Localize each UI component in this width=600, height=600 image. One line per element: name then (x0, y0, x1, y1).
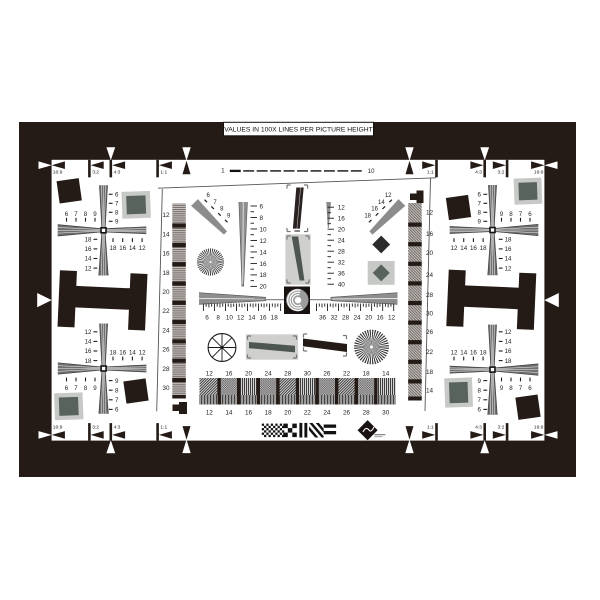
svg-text:10: 10 (260, 226, 268, 233)
svg-text:22: 22 (304, 409, 312, 416)
svg-text:6: 6 (115, 192, 119, 199)
svg-text:4:3: 4:3 (475, 169, 482, 175)
svg-text:30: 30 (304, 370, 312, 377)
svg-text:36: 36 (319, 315, 327, 322)
svg-text:14: 14 (460, 245, 467, 252)
svg-text:28: 28 (284, 370, 292, 377)
svg-text:16: 16 (119, 349, 126, 356)
svg-text:18: 18 (110, 245, 117, 252)
svg-text:20: 20 (245, 370, 253, 377)
svg-text:16: 16 (505, 246, 512, 253)
svg-text:12: 12 (139, 245, 146, 252)
svg-text:8: 8 (216, 315, 220, 322)
svg-text:12: 12 (139, 349, 146, 356)
svg-text:6: 6 (65, 385, 69, 392)
svg-text:18: 18 (110, 349, 117, 356)
svg-text:26: 26 (323, 370, 331, 377)
svg-text:7: 7 (478, 397, 482, 404)
svg-text:16: 16 (376, 315, 384, 322)
svg-text:18: 18 (480, 245, 487, 252)
svg-text:6: 6 (478, 407, 482, 414)
svg-text:22: 22 (426, 349, 434, 356)
svg-text:12: 12 (388, 315, 396, 322)
svg-text:18: 18 (85, 237, 92, 244)
svg-text:3:2: 3:2 (497, 169, 504, 175)
svg-text:18: 18 (364, 213, 371, 219)
svg-text:9: 9 (115, 219, 119, 226)
svg-text:16:9: 16:9 (534, 425, 544, 431)
svg-text:7: 7 (115, 397, 119, 404)
svg-text:6: 6 (478, 192, 482, 199)
svg-text:4:3: 4:3 (114, 169, 121, 175)
svg-text:12: 12 (85, 265, 92, 272)
svg-text:4:3: 4:3 (475, 425, 482, 431)
svg-text:14: 14 (85, 339, 92, 346)
svg-text:16: 16 (505, 348, 512, 355)
svg-text:14: 14 (260, 249, 268, 256)
svg-text:18: 18 (505, 358, 512, 365)
svg-text:20: 20 (426, 250, 434, 257)
svg-text:20: 20 (338, 227, 346, 234)
svg-text:16: 16 (260, 261, 268, 268)
svg-text:12: 12 (426, 210, 434, 217)
svg-text:16: 16 (119, 245, 126, 252)
svg-text:26: 26 (162, 347, 170, 354)
svg-text:1:1: 1:1 (427, 425, 434, 431)
svg-text:24: 24 (323, 409, 331, 416)
svg-text:6: 6 (528, 385, 532, 392)
svg-text:9: 9 (93, 211, 97, 218)
svg-text:18: 18 (271, 315, 279, 322)
svg-text:28: 28 (338, 249, 346, 256)
svg-text:12: 12 (206, 409, 214, 416)
svg-text:12: 12 (505, 329, 512, 336)
svg-text:6: 6 (65, 211, 69, 218)
svg-text:18: 18 (85, 358, 92, 365)
svg-text:16: 16 (225, 370, 233, 377)
svg-text:12: 12 (237, 315, 245, 322)
svg-text:8: 8 (115, 387, 119, 394)
svg-text:14: 14 (129, 245, 136, 252)
svg-text:6: 6 (115, 407, 119, 414)
svg-text:9: 9 (115, 378, 119, 385)
svg-text:16: 16 (85, 348, 92, 355)
svg-text:20: 20 (365, 315, 373, 322)
svg-text:8: 8 (509, 385, 513, 392)
svg-text:14: 14 (460, 349, 467, 356)
svg-text:12: 12 (505, 265, 512, 272)
svg-text:1:1: 1:1 (160, 169, 167, 175)
svg-text:24: 24 (162, 327, 170, 334)
svg-text:7: 7 (519, 211, 523, 218)
svg-text:9: 9 (478, 378, 482, 385)
svg-text:22: 22 (343, 370, 351, 377)
svg-text:30: 30 (382, 409, 390, 416)
svg-text:12: 12 (162, 212, 170, 219)
svg-text:14: 14 (85, 256, 92, 263)
svg-text:14: 14 (225, 409, 233, 416)
svg-text:14: 14 (162, 231, 170, 238)
svg-text:9: 9 (478, 219, 482, 226)
svg-text:20: 20 (162, 289, 170, 296)
svg-text:7: 7 (478, 201, 482, 208)
svg-text:30: 30 (162, 385, 170, 392)
svg-text:16: 16 (338, 216, 346, 223)
svg-text:6: 6 (205, 315, 209, 322)
svg-text:7: 7 (74, 211, 78, 218)
svg-text:28: 28 (363, 409, 371, 416)
svg-text:12: 12 (338, 205, 346, 212)
svg-text:1:1: 1:1 (160, 425, 167, 431)
svg-text:16: 16 (259, 315, 267, 322)
svg-text:10: 10 (226, 315, 234, 322)
svg-text:16: 16 (85, 246, 92, 253)
svg-text:14: 14 (505, 339, 512, 346)
svg-text:16: 16 (426, 231, 434, 238)
svg-text:3:2: 3:2 (92, 425, 99, 431)
svg-text:8: 8 (478, 210, 482, 217)
svg-text:7: 7 (519, 385, 523, 392)
svg-text:28: 28 (426, 292, 434, 299)
svg-text:24: 24 (353, 315, 361, 322)
svg-text:8: 8 (509, 211, 513, 218)
svg-text:22: 22 (162, 308, 170, 315)
svg-text:16: 16 (371, 207, 378, 213)
svg-text:18: 18 (505, 237, 512, 244)
svg-text:14: 14 (426, 387, 434, 394)
svg-text:8: 8 (478, 387, 482, 394)
svg-text:8: 8 (115, 210, 119, 217)
svg-text:28: 28 (162, 366, 170, 373)
svg-text:16: 16 (470, 245, 477, 252)
svg-text:8: 8 (84, 385, 88, 392)
svg-text:14: 14 (505, 256, 512, 263)
svg-text:16: 16 (162, 251, 170, 258)
svg-text:9: 9 (500, 385, 504, 392)
svg-text:12: 12 (451, 349, 458, 356)
svg-text:8: 8 (84, 211, 88, 218)
svg-text:7: 7 (115, 201, 119, 208)
svg-text:6: 6 (528, 211, 532, 218)
svg-text:10: 10 (368, 169, 375, 175)
svg-text:18: 18 (363, 370, 371, 377)
svg-text:3:2: 3:2 (497, 425, 504, 431)
svg-text:18: 18 (480, 349, 487, 356)
svg-text:18: 18 (260, 272, 268, 279)
svg-text:24: 24 (426, 272, 434, 279)
svg-text:36: 36 (338, 271, 346, 278)
svg-text:18: 18 (162, 270, 170, 277)
svg-text:9: 9 (500, 211, 504, 218)
svg-text:32: 32 (338, 260, 346, 267)
svg-text:4:3: 4:3 (114, 425, 121, 431)
svg-text:26: 26 (343, 409, 351, 416)
svg-text:24: 24 (265, 370, 273, 377)
svg-text:20: 20 (284, 409, 292, 416)
svg-text:16: 16 (470, 349, 477, 356)
svg-text:28: 28 (342, 315, 350, 322)
svg-text:14: 14 (248, 315, 256, 322)
svg-text:24: 24 (338, 238, 346, 245)
svg-text:14: 14 (129, 349, 136, 356)
svg-text:14: 14 (382, 370, 390, 377)
svg-text:12: 12 (206, 370, 214, 377)
svg-text:3:2: 3:2 (92, 169, 99, 175)
svg-text:12: 12 (451, 245, 458, 252)
svg-text:16:9: 16:9 (534, 169, 544, 175)
svg-text:12: 12 (85, 329, 92, 336)
svg-text:40: 40 (338, 282, 346, 289)
svg-text:16:9: 16:9 (53, 425, 63, 431)
svg-text:1:1: 1:1 (427, 169, 434, 175)
svg-text:7: 7 (74, 385, 78, 392)
svg-text:32: 32 (330, 315, 338, 322)
svg-text:20: 20 (260, 284, 268, 291)
svg-text:9: 9 (93, 385, 97, 392)
svg-text:26: 26 (426, 329, 434, 336)
svg-text:16: 16 (245, 409, 253, 416)
svg-text:14: 14 (378, 200, 385, 206)
svg-text:18: 18 (265, 409, 273, 416)
svg-text:6: 6 (260, 203, 264, 210)
svg-text:16:9: 16:9 (53, 169, 63, 175)
svg-text:12: 12 (385, 193, 392, 199)
svg-text:12: 12 (260, 238, 268, 245)
svg-text:30: 30 (426, 310, 434, 317)
svg-text:18: 18 (426, 369, 434, 376)
svg-text:VALUES IN 100X LINES PER PICTU: VALUES IN 100X LINES PER PICTURE HEIGHT (224, 127, 372, 134)
svg-text:8: 8 (260, 215, 264, 222)
